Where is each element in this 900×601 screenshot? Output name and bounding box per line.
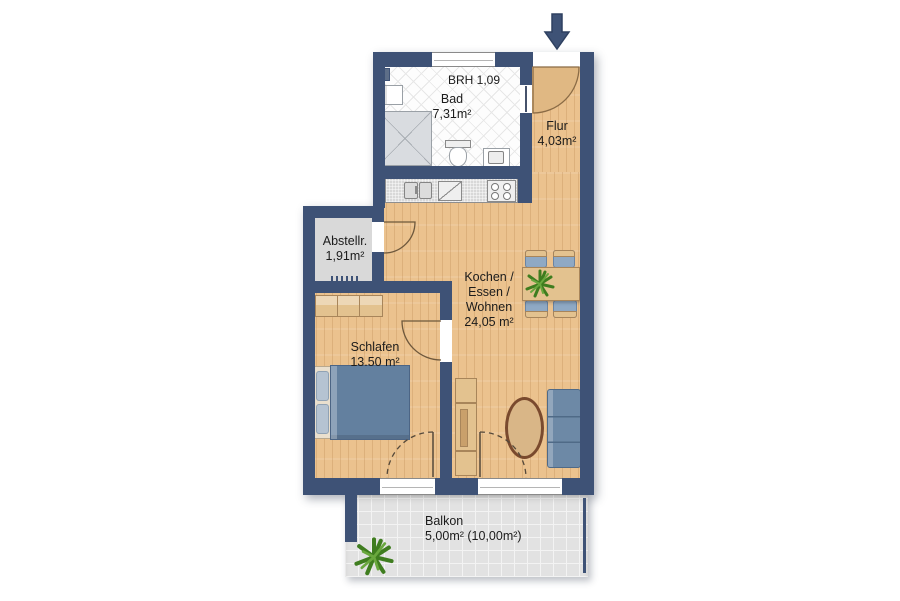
kitchen-sink-right <box>419 182 432 199</box>
wall-right <box>580 52 594 495</box>
bathroom-door-opening <box>520 85 532 113</box>
floor-plan: BRH 1,09 Bad 7,31m² Flur 4,03m² Abstellr… <box>0 0 900 601</box>
burner <box>491 183 499 191</box>
burner <box>503 183 511 191</box>
kitchen-faucet <box>415 186 418 194</box>
room-area: 24,05 m² <box>464 315 513 330</box>
wall-bath-bottom <box>373 166 532 179</box>
room-area: 5,00m² (10,00m²) <box>425 529 522 544</box>
dining-chair <box>553 300 577 318</box>
wardrobe <box>315 295 383 317</box>
room-name: Schlafen <box>350 340 399 355</box>
sofa <box>547 389 581 468</box>
room-label-bad: Bad 7,31m² <box>433 92 472 122</box>
living-balcony-door-window <box>478 478 562 495</box>
bed-pillow <box>316 404 329 434</box>
washbasin <box>383 85 403 105</box>
kitchen-worktop-board <box>438 181 462 201</box>
wall-bedroom-right-upper <box>440 281 452 320</box>
room-area: 7,31m² <box>433 107 472 122</box>
burner <box>491 192 499 200</box>
wall-bedroom-top <box>303 281 450 293</box>
wall-bath-left <box>373 52 385 208</box>
bathroom-window <box>432 52 495 67</box>
room-area: 1,91m² <box>323 249 367 264</box>
balcony-side-wall <box>345 495 357 542</box>
wall-bottom-left <box>303 478 380 495</box>
room-label-schlafen: Schlafen 13.50 m² <box>350 340 399 370</box>
wall-storage-right-upper <box>372 206 384 222</box>
storage-door-opening <box>372 222 384 252</box>
burner <box>503 192 511 200</box>
coffee-table <box>505 397 544 459</box>
wall-kitchen-right <box>518 179 532 203</box>
dining-chair <box>553 250 575 268</box>
toilet-bowl <box>449 147 467 167</box>
bed-pillow <box>316 371 329 401</box>
bedroom-balcony-door <box>380 478 435 495</box>
bedroom-door-opening <box>440 320 452 362</box>
hand-sink-basin <box>488 151 504 164</box>
entrance-opening <box>533 52 580 67</box>
wall-bedroom-right-lower <box>440 362 452 478</box>
balcony-railing <box>583 498 586 573</box>
room-label-wohnen: Kochen / Essen / Wohnen 24,05 m² <box>464 270 513 330</box>
room-area: 13.50 m² <box>350 355 399 370</box>
dining-table <box>522 267 580 301</box>
bed-duvet <box>330 365 410 440</box>
room-name: Bad <box>433 92 472 107</box>
dining-chair <box>525 250 547 268</box>
wall-bottom-right <box>562 478 594 495</box>
wall-bottom-mid <box>435 478 478 495</box>
room-area: 4,03m² <box>538 134 577 149</box>
wall-left <box>303 206 315 495</box>
stove <box>487 180 516 202</box>
room-name: Abstellr. <box>323 234 367 249</box>
window-sill-label: BRH 1,09 <box>448 73 500 88</box>
sideboard <box>455 378 477 476</box>
room-label-abstellraum: Abstellr. 1,91m² <box>323 234 367 264</box>
room-name: Wohnen <box>464 300 513 315</box>
room-label-flur: Flur 4,03m² <box>538 119 577 149</box>
wall-bath-hall-lower <box>520 113 532 166</box>
entrance-arrow-icon <box>545 14 569 49</box>
dining-chair <box>525 300 548 318</box>
wall-bath-hall-upper <box>520 52 532 85</box>
room-name: Balkon <box>425 514 522 529</box>
room-name: Kochen / <box>464 270 513 285</box>
room-name: Flur <box>538 119 577 134</box>
room-label-balkon: Balkon 5,00m² (10,00m²) <box>425 514 522 544</box>
sideboard-detail <box>460 409 468 447</box>
shower <box>378 111 432 166</box>
room-name: Essen / <box>464 285 513 300</box>
